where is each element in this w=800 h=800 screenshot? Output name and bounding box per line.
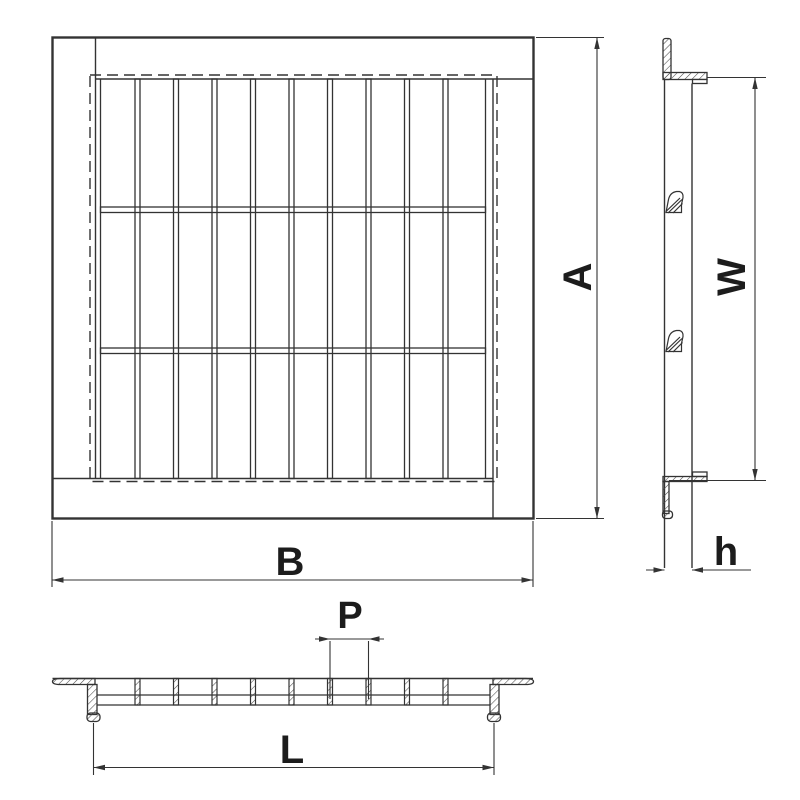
arrowhead-left	[52, 577, 64, 582]
frame-leg-foot	[488, 713, 501, 722]
grating-edge-bands	[101, 79, 486, 479]
dim-label-B: B	[276, 540, 305, 584]
frame-leg-foot	[87, 713, 100, 722]
dimension-h: h	[646, 530, 751, 574]
grating-technical-drawing: A B	[0, 0, 800, 800]
bearing-bar-section	[443, 679, 448, 706]
bearing-bar	[135, 79, 140, 479]
frame-angle-top	[663, 39, 707, 84]
angle-vertical-leg	[663, 482, 669, 514]
arrowhead-right	[319, 636, 330, 641]
dimension-W: W	[669, 78, 766, 481]
bearing-bars-plan	[135, 79, 448, 479]
bearing-bar	[405, 79, 410, 479]
arrowhead-up	[594, 38, 599, 50]
bearing-bar-section	[212, 679, 217, 706]
frame-leg	[88, 685, 98, 715]
dimension-L: L	[94, 723, 495, 775]
frame-outer-edge	[53, 38, 534, 519]
frame-angle-bottom	[663, 472, 708, 519]
dim-label-W: W	[710, 258, 754, 296]
bearing-bar-section	[174, 679, 179, 706]
bearing-bar	[366, 79, 371, 479]
dim-label-h: h	[714, 530, 738, 574]
dim-label-A: A	[556, 263, 600, 292]
arrowhead-right	[483, 765, 495, 770]
plan-view	[53, 38, 534, 519]
dimension-P: P	[315, 595, 384, 699]
bearing-bar	[443, 79, 448, 479]
cross-bar	[101, 207, 486, 213]
frame-section-right	[488, 679, 534, 722]
bearing-bar-section	[251, 679, 256, 706]
arrowhead-right	[654, 567, 665, 572]
arrowhead-left	[94, 765, 106, 770]
angle-leg-lip	[693, 80, 708, 84]
frame-inner-opening	[53, 38, 534, 519]
bearing-bar-section	[405, 679, 410, 706]
arrowhead-down	[752, 469, 757, 481]
bearing-bar	[212, 79, 217, 479]
section-view	[53, 679, 534, 722]
angle-horizontal-leg	[663, 73, 707, 80]
angle-leg-foot	[663, 511, 673, 519]
bearing-bar	[289, 79, 294, 479]
dimension-B: B	[52, 521, 533, 587]
bearing-bar-section	[135, 679, 140, 706]
bearing-bar	[251, 79, 256, 479]
frame-leg	[490, 685, 499, 715]
side-view	[663, 39, 708, 569]
bearing-bar	[328, 79, 333, 479]
arrowhead-up	[752, 78, 757, 90]
bearing-bar-section	[289, 679, 294, 706]
cross-bar	[101, 348, 486, 354]
dim-label-P: P	[337, 595, 362, 637]
arrowhead-left	[369, 636, 380, 641]
arrowhead-left	[692, 567, 703, 572]
frame-flange	[53, 679, 96, 685]
dim-label-L: L	[280, 728, 304, 772]
technical-drawing-canvas: A B	[0, 0, 800, 800]
arrowhead-down	[594, 507, 599, 519]
anchor-hook	[666, 331, 683, 353]
bearing-bar	[174, 79, 179, 479]
angle-leg-lip	[693, 472, 708, 477]
frame-section-left	[53, 679, 101, 722]
bearing-bars-section	[135, 679, 448, 706]
arrowhead-right	[522, 577, 534, 582]
cross-bars	[101, 207, 486, 354]
frame-flange	[493, 679, 534, 685]
dimension-A: A	[536, 38, 604, 519]
anchor-hook	[666, 192, 683, 214]
